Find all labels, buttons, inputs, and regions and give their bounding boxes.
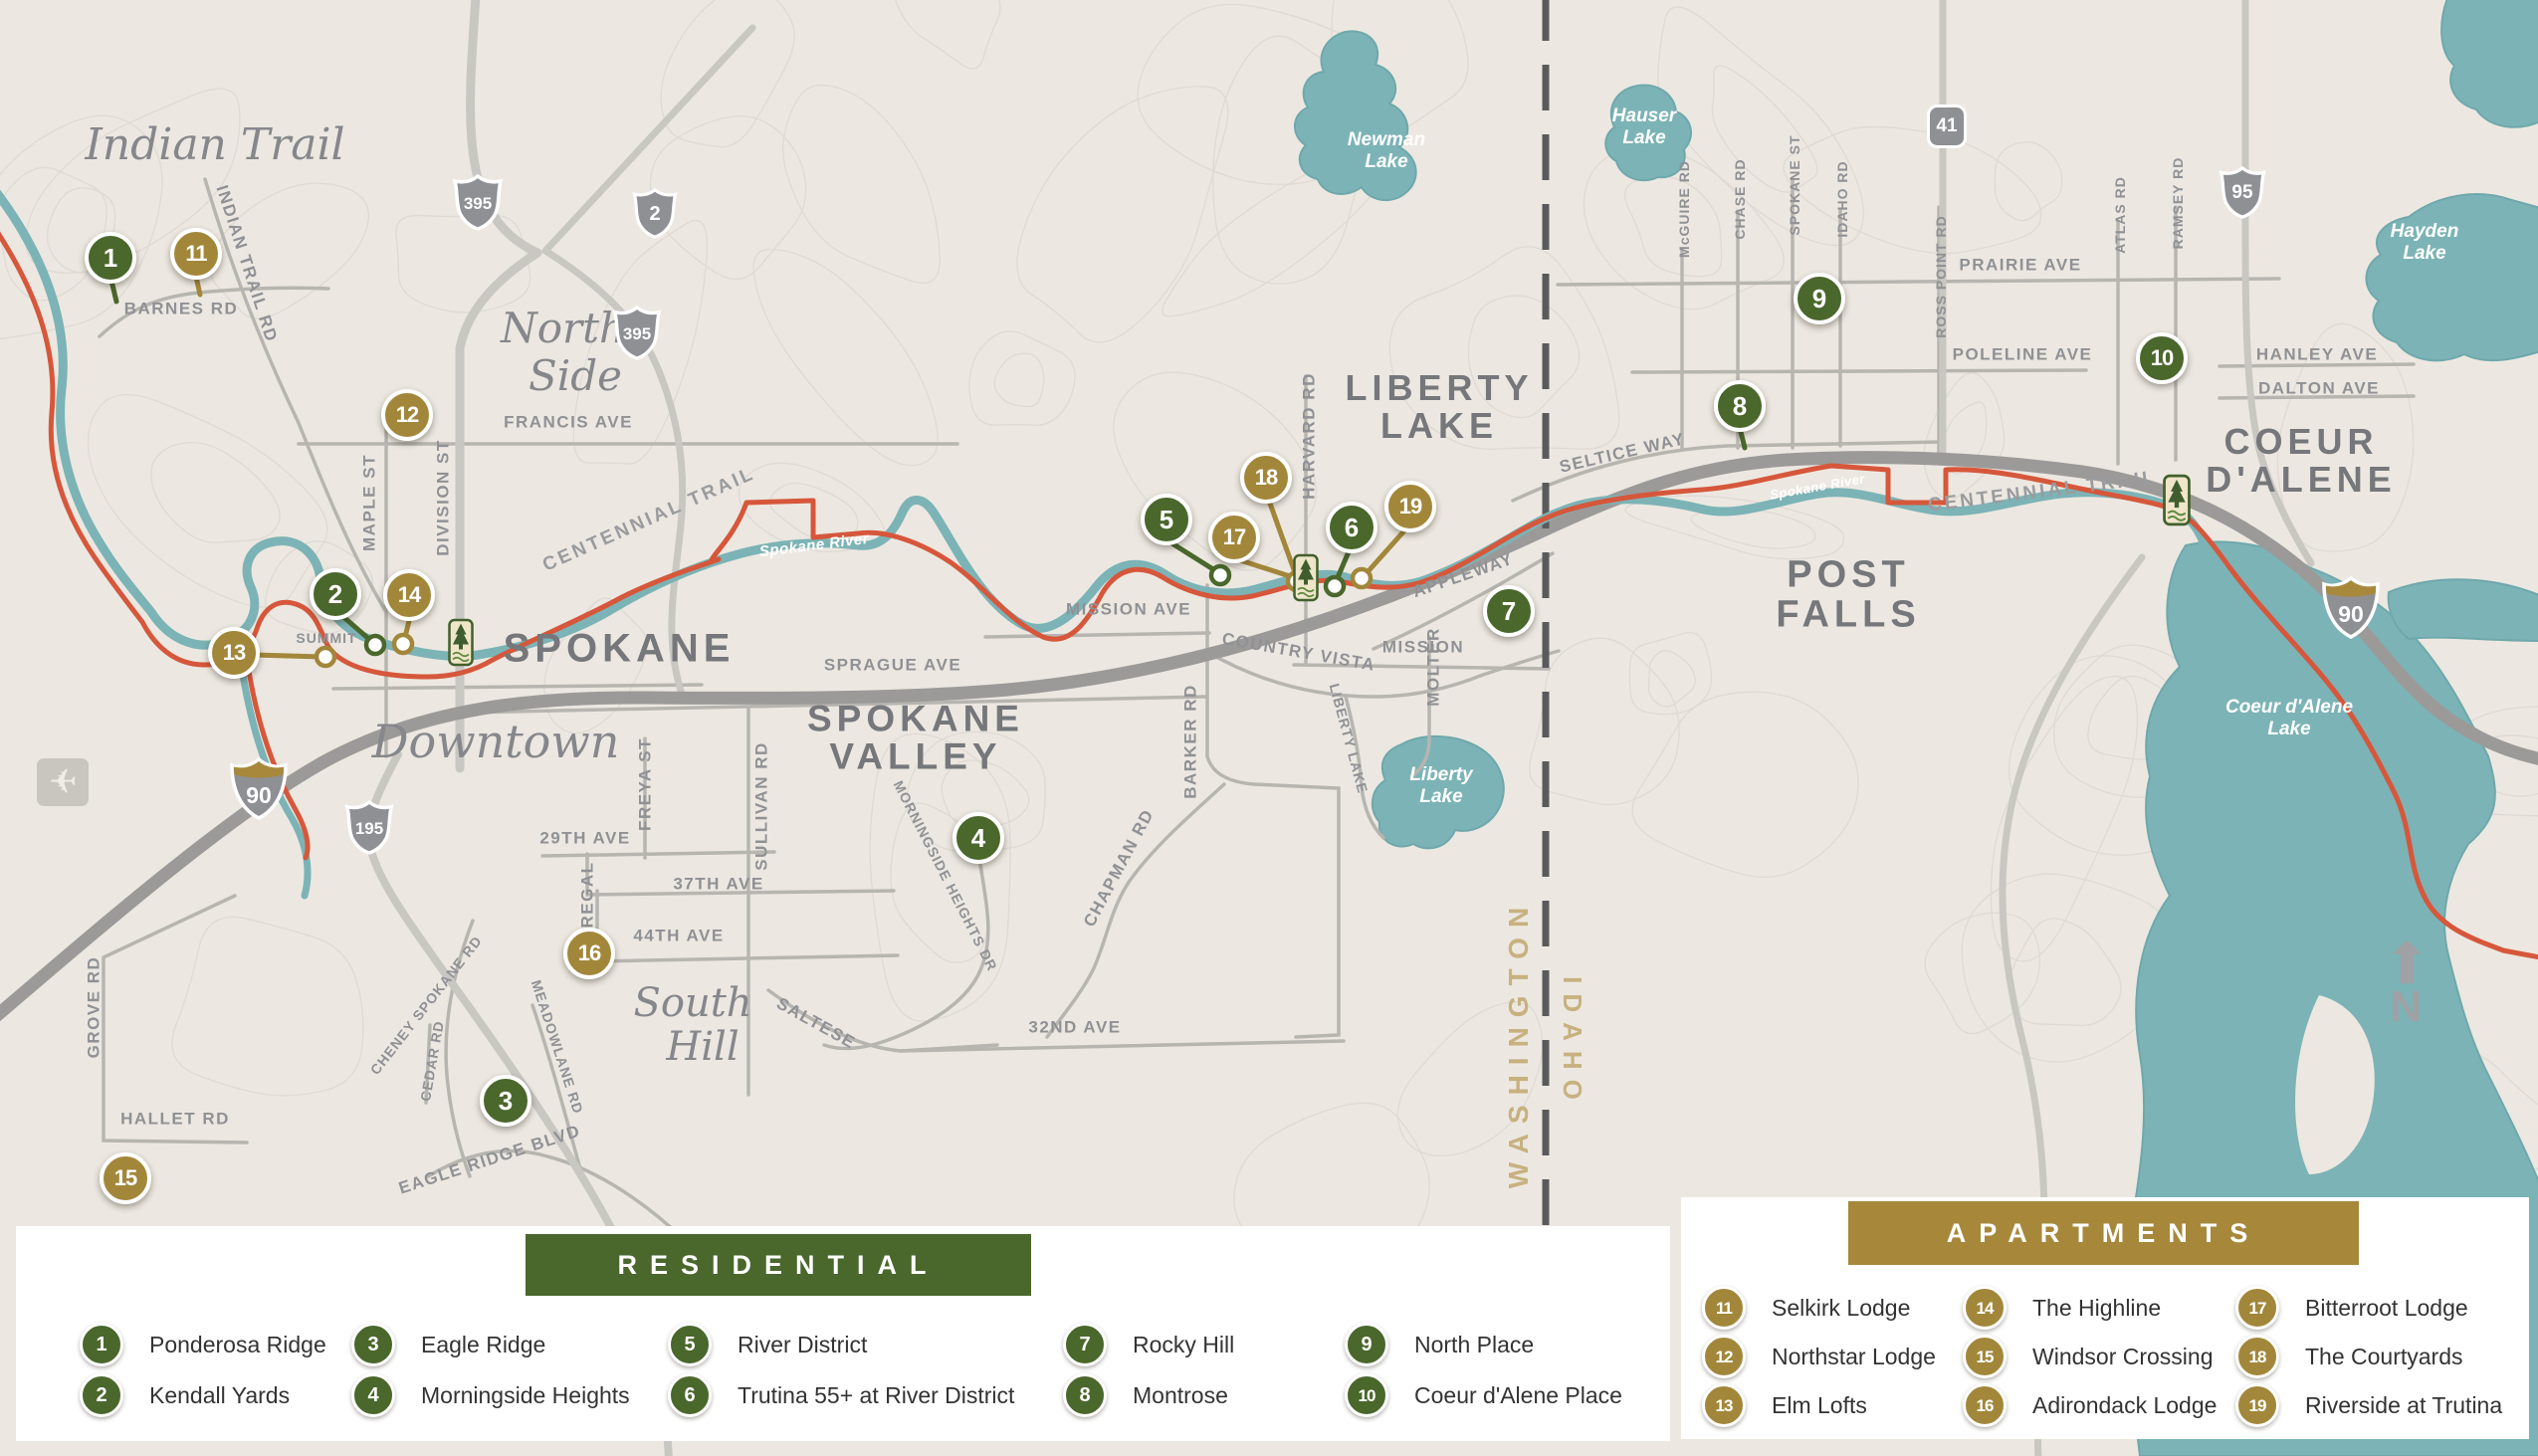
legend-label-5: River District (738, 1334, 867, 1356)
contour-line (172, 917, 363, 1095)
map-marker-13: 13 (208, 627, 260, 679)
legend-item-18: 18The Courtyards (2257, 1335, 2463, 1378)
contour-line (1017, 87, 1228, 342)
legend-label-15: Windsor Crossing (2032, 1346, 2214, 1368)
map-marker-8: 8 (1714, 380, 1766, 432)
us395-shield-south: 395 (610, 304, 664, 361)
us2-shield: 2 (630, 186, 680, 240)
road-idaho: IDAHO RD (1835, 160, 1849, 237)
legend-label-9: North Place (1414, 1334, 1534, 1356)
coeur-dalene-lake-label: Coeur d'Alene Lake (2215, 697, 2364, 740)
road-44th: 44TH AVE (633, 928, 724, 944)
contour-line (151, 443, 280, 543)
city-post-falls-2: FALLS (1776, 594, 1920, 637)
trailhead-tree-icon (448, 619, 474, 672)
city-coeur-dalene-1: COEUR (2223, 422, 2378, 462)
road-regal: REGAL (579, 862, 596, 929)
road-francis: FRANCIS AVE (504, 414, 633, 431)
hayden-lake-north-arm (2441, 0, 2538, 127)
neighborhood-indian-trail: Indian Trail (85, 122, 344, 168)
legend-badge-14: 14 (1963, 1286, 2007, 1330)
legend-label-16: Adirondack Lodge (2032, 1394, 2217, 1417)
road-ramsey: RAMSEY RD (2171, 157, 2185, 250)
road-sullivan: SULLIVAN RD (753, 741, 770, 871)
legend-badge-17: 17 (2235, 1286, 2279, 1330)
legend-label-11: Selkirk Lodge (1772, 1297, 1910, 1320)
legend-label-3: Eagle Ridge (421, 1334, 545, 1356)
legend-item-2: 2Kendall Yards (102, 1373, 290, 1417)
city-post-falls-1: POST (1787, 554, 1909, 597)
road-barker: BARKER RD (1182, 684, 1199, 799)
neighborhood-north-side-1: North (501, 307, 626, 350)
legend-item-4: 4Morningside Heights (373, 1373, 630, 1417)
legend-item-11: 11Selkirk Lodge (1724, 1286, 1910, 1330)
road-poleline: POLELINE AVE (1953, 346, 2093, 363)
contour-line (969, 331, 1075, 425)
sr41-shield: 41 (1926, 104, 1968, 149)
map-marker-3: 3 (480, 1075, 531, 1127)
contour-line (0, 167, 106, 300)
road-hanley: HANLEY AVE (2256, 346, 2378, 363)
road-sprague: SPRAGUE AVE (824, 657, 961, 674)
legend-item-12: 12Northstar Lodge (1724, 1335, 1936, 1378)
legend-item-14: 14The Highline (1985, 1286, 2161, 1330)
contour-line (1991, 677, 2137, 961)
neighborhood-south-hill-1: South (633, 982, 751, 1024)
legend-badge-1: 1 (80, 1323, 123, 1366)
legend-item-5: 5River District (690, 1323, 867, 1366)
map-marker-15: 15 (100, 1152, 151, 1204)
map-marker-6: 6 (1326, 502, 1377, 553)
legend-badge-16: 16 (1963, 1383, 2007, 1427)
city-spokane: SPOKANE (504, 627, 736, 672)
us95-shield-number: 95 (2217, 182, 2268, 204)
legend-item-19: 19Riverside at Trutina (2257, 1383, 2502, 1427)
legend-badge-12: 12 (1702, 1335, 1746, 1378)
contour-line (783, 86, 941, 284)
legend-label-1: Ponderosa Ridge (149, 1334, 326, 1356)
contour-line (2009, 919, 2121, 1026)
map-canvas: Indian Trail North Side Downtown South H… (0, 0, 2538, 1456)
contour-line (1530, 638, 1679, 804)
legend-item-8: 8Montrose (1085, 1373, 1228, 1417)
legend-label-7: Rocky Hill (1133, 1334, 1234, 1356)
map-marker-12: 12 (381, 389, 433, 441)
coeur-dalene-lake-east-arm (2389, 579, 2538, 641)
road-atlas: ATLAS RD (2113, 176, 2127, 254)
i90-shield-number: 90 (2321, 601, 2381, 628)
road-mission-ave: MISSION AVE (1066, 601, 1191, 618)
legend-label-6: Trutina 55+ at River District (738, 1384, 1014, 1407)
liberty-lake-label: Liberty Lake (1391, 764, 1491, 808)
map-marker-11: 11 (170, 228, 222, 280)
map-marker-19: 19 (1384, 481, 1436, 532)
hayden-lake-label: Hayden Lake (2375, 221, 2474, 265)
city-spokane-valley-2: VALLEY (829, 735, 1001, 776)
us395-shield-north: 395 (450, 172, 506, 232)
road-maple: MAPLE ST (361, 454, 378, 551)
legend-badge-18: 18 (2235, 1335, 2279, 1378)
contour-line (1924, 373, 2005, 500)
legend-badge-19: 19 (2235, 1383, 2279, 1427)
legend-badge-2: 2 (80, 1373, 123, 1417)
north-arrow: ⬆ N (2383, 941, 2429, 1027)
contour-line (1925, 913, 2039, 1033)
legend-item-7: 7Rocky Hill (1085, 1323, 1234, 1366)
road-37th: 37TH AVE (673, 876, 763, 893)
legend-label-2: Kendall Yards (149, 1384, 290, 1407)
contour-line (1629, 633, 1711, 715)
map-marker-17: 17 (1208, 512, 1260, 563)
legend-item-13: 13Elm Lofts (1724, 1383, 1867, 1427)
contour-line (1784, 126, 2041, 253)
state-label-washington: WASHINGTON (1505, 898, 1533, 1188)
legend-item-6: 6Trutina 55+ at River District (690, 1373, 1014, 1417)
road-summit: SUMMIT (296, 631, 356, 645)
contour-line (1632, 692, 1858, 877)
road-grove: GROVE RD (86, 956, 103, 1059)
us2-shield-number: 2 (630, 203, 680, 226)
legend-label-8: Montrose (1133, 1384, 1228, 1407)
map-marker-18: 18 (1240, 452, 1292, 504)
us95-shield: 95 (2217, 164, 2268, 220)
road-spokane-st: SPOKANE ST (1788, 134, 1801, 235)
legend-badge-6: 6 (668, 1373, 712, 1417)
legend-item-16: 16Adirondack Lodge (1985, 1383, 2217, 1427)
legend-label-14: The Highline (2032, 1297, 2161, 1320)
road-prairie: PRAIRIE AVE (1959, 257, 2081, 274)
newman-lake-shape (1295, 31, 1416, 200)
road-dalton: DALTON AVE (2258, 380, 2380, 397)
legend-badge-9: 9 (1345, 1323, 1388, 1366)
legend-item-10: 10Coeur d'Alene Place (1367, 1373, 1622, 1417)
trailhead-tree-icon (1293, 554, 1319, 607)
legend-item-3: 3Eagle Ridge (373, 1323, 545, 1366)
newman-lake-label: Newman Lake (1332, 129, 1441, 173)
road-32nd: 32ND AVE (1028, 1019, 1121, 1036)
map-marker-9: 9 (1794, 273, 1845, 324)
road-barnes: BARNES RD (124, 301, 239, 317)
legend-residential-header: RESIDENTIAL (526, 1234, 1031, 1296)
contour-line (1625, 176, 1722, 277)
contour-line (994, 353, 1044, 406)
road-harvard: HARVARD RD (1301, 372, 1318, 500)
legend-badge-8: 8 (1063, 1373, 1107, 1417)
legend-badge-10: 10 (1345, 1373, 1388, 1417)
legend-badge-13: 13 (1702, 1383, 1746, 1427)
airplane-glyph: ✈ (49, 762, 78, 802)
neighborhood-downtown: Downtown (372, 718, 620, 765)
state-label-idaho: IDAHO (1560, 976, 1586, 1110)
road-chase: CHASE RD (1733, 158, 1747, 239)
legend-apartments-header: APARTMENTS (1848, 1201, 2359, 1265)
road-29th: 29TH AVE (539, 830, 630, 847)
road-mcguire: McGUIRE RD (1677, 160, 1691, 258)
city-spokane-valley-1: SPOKANE (807, 698, 1024, 738)
trailhead-tree-icon (2162, 475, 2192, 531)
legend-item-9: 9North Place (1367, 1323, 1534, 1366)
i90-shield-number: 90 (229, 782, 289, 809)
legend-badge-5: 5 (668, 1323, 712, 1366)
map-marker-5: 5 (1141, 494, 1192, 545)
road-ross-point: ROSS POINT RD (1934, 215, 1948, 337)
legend-badge-15: 15 (1963, 1335, 2007, 1378)
legend-item-1: 1Ponderosa Ridge (102, 1323, 326, 1366)
map-marker-7: 7 (1483, 585, 1535, 637)
road-division: DIVISION ST (435, 439, 452, 556)
contour-line (661, 0, 794, 147)
map-marker-16: 16 (563, 928, 615, 979)
legend-label-12: Northstar Lodge (1772, 1346, 1936, 1368)
city-liberty-lake-1: LIBERTY (1345, 368, 1533, 408)
map-marker-10: 10 (2136, 332, 2188, 384)
map-marker-14: 14 (383, 569, 435, 621)
legend-badge-11: 11 (1702, 1286, 1746, 1330)
sr41-shield-number: 41 (1926, 115, 1968, 137)
us195-shield: 195 (342, 798, 396, 856)
neighborhood-south-hill-2: Hill (666, 1026, 739, 1068)
legend-badge-7: 7 (1063, 1323, 1107, 1366)
legend-label-18: The Courtyards (2305, 1346, 2463, 1368)
contour-line (891, 0, 999, 69)
road-molter: MOLTER (1425, 627, 1442, 707)
legend-item-15: 15Windsor Crossing (1985, 1335, 2214, 1378)
i90-shield-west: 90 (229, 756, 289, 820)
legend-label-13: Elm Lofts (1772, 1394, 1867, 1417)
legend-label-10: Coeur d'Alene Place (1414, 1384, 1622, 1407)
us195-shield-number: 195 (342, 819, 396, 839)
north-arrow-icon: ⬆ (2383, 941, 2429, 987)
legend-badge-3: 3 (351, 1323, 395, 1366)
legend-label-17: Bitterroot Lodge (2305, 1297, 2468, 1320)
city-coeur-dalene-2: D'ALENE (2206, 460, 2397, 500)
airport-icon: ✈ (37, 758, 89, 806)
us395-shield-number: 395 (450, 194, 506, 214)
us395-shield-number: 395 (610, 324, 664, 344)
map-marker-4: 4 (952, 812, 1004, 864)
legend-badge-4: 4 (351, 1373, 395, 1417)
legend-label-19: Riverside at Trutina (2305, 1394, 2502, 1417)
contour-line (1995, 142, 2061, 221)
map-marker-2: 2 (310, 568, 361, 620)
road-hallet: HALLET RD (120, 1111, 230, 1128)
city-liberty-lake-2: LAKE (1380, 406, 1498, 446)
legend-label-4: Morningside Heights (421, 1384, 630, 1407)
road-freya: FREYA ST (637, 737, 654, 831)
neighborhood-north-side-2: Side (529, 354, 622, 398)
i90-shield-east: 90 (2321, 575, 2381, 639)
hayden-lake-shape (2366, 194, 2538, 360)
map-marker-1: 1 (85, 232, 136, 284)
rivers (0, 189, 2204, 896)
contour-line (753, 250, 938, 466)
hauser-lake-label: Hauser Lake (1599, 105, 1689, 149)
legend-item-17: 17Bitterroot Lodge (2257, 1286, 2468, 1330)
